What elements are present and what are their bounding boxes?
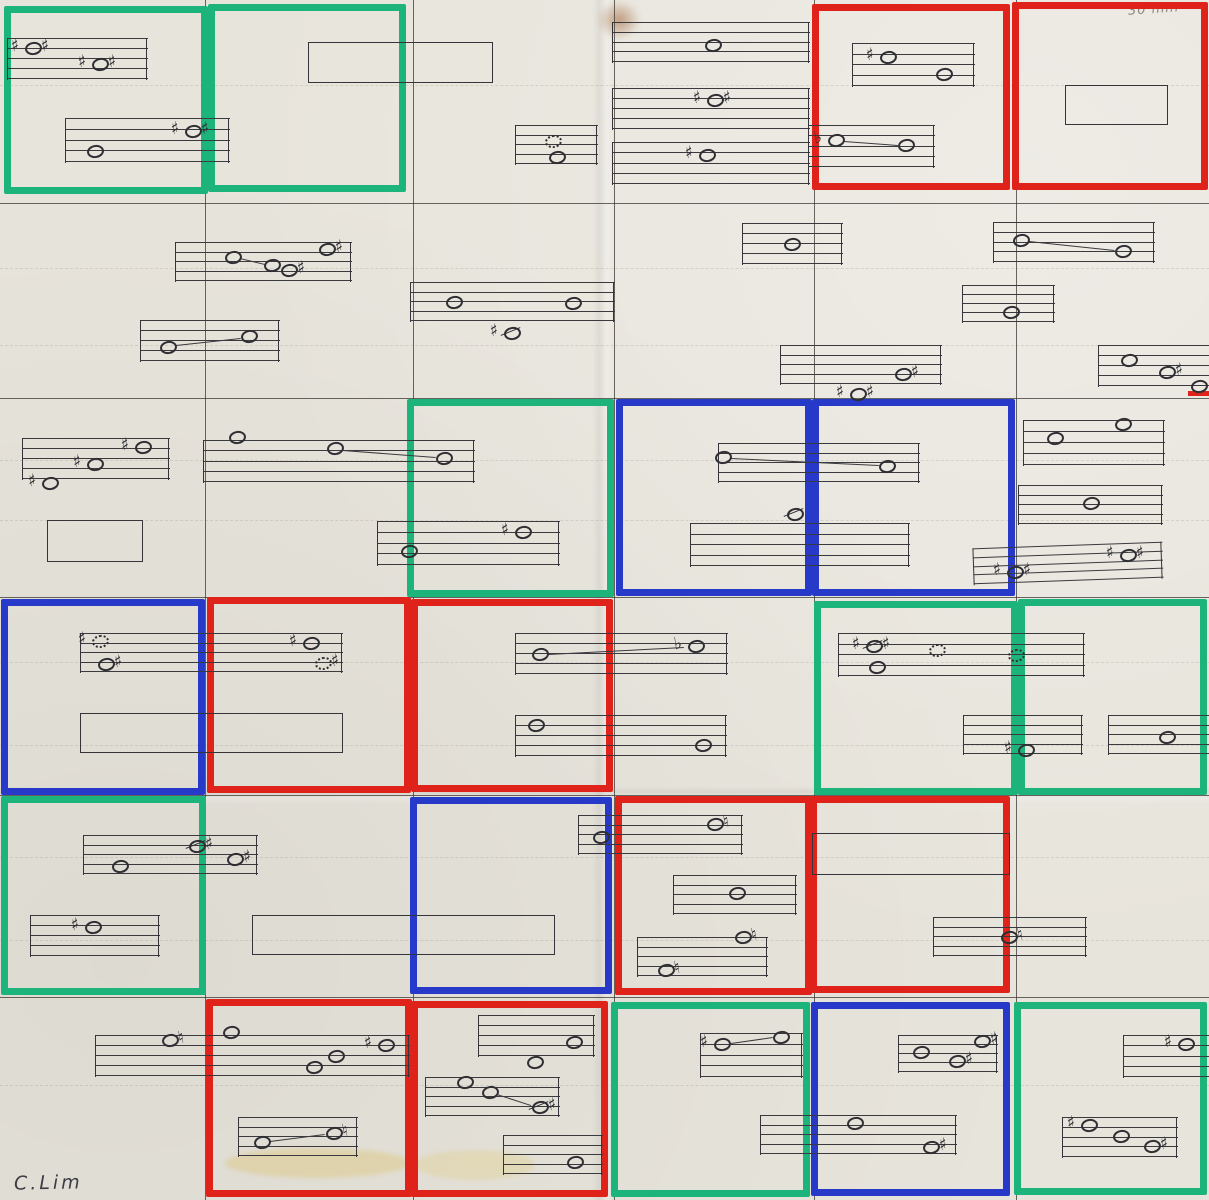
- staff-end-bar: [278, 320, 279, 362]
- rectangle-frame: [308, 42, 493, 83]
- staff-fragment: [808, 125, 935, 168]
- grid-cell-green-r0c1: [208, 4, 406, 192]
- rectangle-frame: [252, 915, 555, 955]
- staff-line: [7, 38, 148, 39]
- staff-line: [203, 471, 475, 472]
- staff-line: [993, 232, 1155, 233]
- staff-end-bar: [515, 715, 516, 757]
- staff-end-bar: [1108, 715, 1109, 755]
- staff-line: [203, 481, 475, 482]
- staff-line: [933, 946, 1087, 947]
- staff-line: [1018, 514, 1163, 515]
- staff-line: [742, 263, 843, 264]
- staff-end-bar: [1053, 285, 1054, 323]
- staff-line: [410, 311, 615, 312]
- staff-line: [478, 1015, 595, 1016]
- staff-line: [515, 633, 728, 634]
- staff-line: [175, 280, 352, 281]
- staff-line: [503, 1145, 603, 1146]
- grid-cell-green-r3c4: [814, 601, 1018, 795]
- staff-end-bar: [515, 125, 516, 165]
- staff-end-bar: [690, 523, 691, 567]
- staff-line: [1098, 375, 1209, 376]
- staff-line: [637, 975, 768, 976]
- staff-line: [1098, 345, 1209, 346]
- staff-line: [612, 142, 810, 143]
- staff-line: [673, 875, 797, 876]
- staff-end-bar: [596, 125, 597, 165]
- staff-line: [95, 1075, 410, 1076]
- staff-line: [690, 523, 910, 524]
- staff-end-bar: [558, 1077, 559, 1117]
- staff-line: [780, 345, 942, 346]
- staff-line: [673, 885, 797, 886]
- staff-line: [612, 61, 810, 62]
- staff-end-bar: [1083, 633, 1084, 677]
- staff-line: [1018, 485, 1163, 486]
- staff-line: [503, 1154, 603, 1155]
- staff-end-bar: [1018, 485, 1019, 525]
- staff-line: [1023, 453, 1165, 454]
- staff-line: [1023, 431, 1165, 432]
- staff-line: [377, 564, 560, 565]
- staff-line: [962, 294, 1055, 295]
- staff-line: [718, 453, 920, 454]
- staff-line: [30, 955, 160, 956]
- staff-end-bar: [1163, 420, 1164, 466]
- staff-line: [410, 282, 615, 283]
- staff-end-bar: [601, 1135, 602, 1175]
- staff-line: [377, 521, 560, 522]
- staff-line: [808, 146, 935, 147]
- staff-end-bar: [1123, 1035, 1124, 1078]
- pencil-grid-hline: [0, 997, 1209, 998]
- rectangle-frame: [812, 833, 1010, 875]
- staff-end-bar: [1153, 222, 1154, 263]
- accidental-left: ♯: [835, 384, 846, 402]
- staff-end-bar: [175, 242, 176, 282]
- staff-fragment: [1023, 420, 1165, 466]
- staff-line: [1098, 365, 1209, 366]
- staff-line: [1123, 1056, 1209, 1057]
- grid-cell-red-r4c4: [810, 796, 1010, 993]
- staff-line: [742, 223, 843, 224]
- staff-line: [1018, 523, 1163, 524]
- staff-end-bar: [838, 633, 839, 677]
- staff-end-bar: [228, 118, 229, 163]
- staff-line: [83, 835, 258, 836]
- staff-end-bar: [256, 835, 257, 875]
- staff-line: [30, 945, 160, 946]
- staff-line: [7, 78, 148, 79]
- rectangle-frame: [1065, 85, 1168, 125]
- staff-line: [515, 663, 728, 664]
- staff-end-bar: [725, 715, 726, 757]
- grid-cell-green-r0c0: [4, 6, 208, 194]
- staff-line: [637, 956, 768, 957]
- staff-end-bar: [742, 223, 743, 265]
- staff-line: [852, 85, 975, 86]
- staff-end-bar: [808, 22, 809, 63]
- staff-end-bar: [1161, 485, 1162, 525]
- staff-line: [95, 1055, 410, 1056]
- staff-end-bar: [766, 937, 767, 977]
- staff-end-bar: [83, 835, 84, 875]
- staff-line: [1108, 753, 1209, 754]
- staff-line: [83, 873, 258, 874]
- staff-line: [410, 320, 615, 321]
- staff-fragment: [515, 715, 727, 757]
- staff-end-bar: [940, 345, 941, 385]
- staff-end-bar: [993, 222, 994, 263]
- note-head-o: [41, 476, 60, 491]
- staff-end-bar: [741, 815, 742, 855]
- staff-fragment: [503, 1135, 603, 1175]
- staff-end-bar: [612, 22, 613, 63]
- staff-end-bar: [1160, 542, 1162, 579]
- staff-line: [410, 301, 615, 302]
- staff-line: [140, 330, 280, 331]
- staff-end-bar: [760, 1115, 761, 1155]
- staff-line: [80, 633, 343, 634]
- rectangle-frame: [80, 713, 343, 753]
- staff-line: [612, 108, 810, 109]
- staff-end-bar: [22, 438, 23, 480]
- staff-line: [808, 125, 935, 126]
- accidental-left: ♯: [489, 323, 500, 341]
- staff-line: [933, 927, 1087, 928]
- staff-line: [1108, 715, 1209, 716]
- staff-line: [612, 183, 810, 184]
- accidental-right: ♯: [865, 384, 876, 402]
- staff-line: [673, 904, 797, 905]
- staff-line: [898, 1071, 998, 1072]
- staff-line: [700, 1065, 803, 1066]
- staff-end-bar: [341, 633, 342, 673]
- staff-line: [503, 1135, 603, 1136]
- staff-line: [612, 118, 810, 119]
- staff-line: [478, 1025, 595, 1026]
- staff-line: [612, 88, 810, 89]
- staff-line: [993, 261, 1155, 262]
- staff-line: [1023, 442, 1165, 443]
- staff-end-bar: [795, 875, 796, 915]
- staff-line: [963, 715, 1083, 716]
- staff-line: [933, 917, 1087, 918]
- staff-line: [690, 544, 910, 545]
- staff-line: [1108, 744, 1209, 745]
- staff-fragment: [637, 937, 768, 977]
- staff-line: [780, 355, 942, 356]
- staff-line: [808, 156, 935, 157]
- staff-line: [425, 1115, 560, 1116]
- staff-line: [65, 161, 230, 162]
- staff-end-bar: [350, 242, 351, 282]
- staff-end-bar: [1085, 917, 1086, 957]
- grid-cell-green-r5c5: [1014, 1002, 1207, 1195]
- staff-line: [83, 845, 258, 846]
- staff-line: [808, 135, 935, 136]
- staff-line: [30, 935, 160, 936]
- grid-cell-red-r3c1: [207, 597, 411, 793]
- signature: C.Lim: [14, 1171, 83, 1194]
- staff-line: [690, 534, 910, 535]
- grid-cell-blue-r3c0: [1, 599, 205, 795]
- staff-line: [203, 461, 475, 462]
- staff-end-bar: [95, 1035, 96, 1077]
- staff-line: [377, 543, 560, 544]
- staff-line: [612, 32, 810, 33]
- grid-cell-blue-r5c4: [811, 1002, 1010, 1196]
- staff-end-bar: [908, 523, 909, 567]
- rectangle-frame: [47, 520, 143, 562]
- staff-line: [377, 532, 560, 533]
- staff-end-bar: [962, 285, 963, 323]
- staff-end-bar: [356, 1117, 357, 1157]
- staff-end-bar: [515, 633, 516, 675]
- staff-line: [503, 1164, 603, 1165]
- grid-cell-green-r2c2: [407, 399, 614, 597]
- staff-line: [1023, 420, 1165, 421]
- staff-line: [1098, 355, 1209, 356]
- staff-end-bar: [1062, 1117, 1063, 1158]
- staff-line: [65, 140, 230, 141]
- staff-line: [95, 1045, 410, 1046]
- staff-line: [690, 555, 910, 556]
- staff-end-bar: [203, 440, 204, 483]
- staff-line: [515, 735, 727, 736]
- staff-line: [700, 1055, 803, 1056]
- staff-end-bar: [1098, 345, 1099, 387]
- staff-line: [718, 481, 920, 482]
- staff-end-bar: [841, 223, 842, 265]
- staff-line: [612, 163, 810, 164]
- staff-line: [515, 125, 598, 126]
- staff-line: [637, 966, 768, 967]
- staff-line: [515, 715, 727, 716]
- staff-line: [963, 725, 1083, 726]
- staff-line: [22, 438, 170, 439]
- staff-fragment: [690, 523, 910, 567]
- staff-end-bar: [963, 715, 964, 755]
- staff-line: [742, 253, 843, 254]
- staff-end-bar: [780, 345, 781, 385]
- grid-cell-green-r3c5: [1018, 599, 1207, 795]
- staff-end-bar: [1023, 420, 1024, 466]
- staff-line: [1108, 725, 1209, 726]
- accidental-right: ♮: [177, 1030, 185, 1048]
- staff-end-bar: [408, 1035, 409, 1077]
- staff-end-bar: [898, 1035, 899, 1073]
- staff-end-bar: [593, 1015, 594, 1057]
- staff-line: [760, 1115, 957, 1116]
- staff-line: [1062, 1117, 1178, 1118]
- staff-end-bar: [1081, 715, 1082, 755]
- staff-line: [175, 271, 352, 272]
- staff-line: [515, 725, 727, 726]
- staff-end-bar: [7, 38, 8, 80]
- staff-line: [673, 913, 797, 914]
- staff-end-bar: [612, 88, 613, 130]
- staff-end-bar: [973, 43, 974, 87]
- grid-cell-green-r4c0: [1, 796, 206, 995]
- staff-line: [993, 222, 1155, 223]
- staff-line: [742, 233, 843, 234]
- staff-end-bar: [1176, 1117, 1177, 1158]
- staff-end-bar: [30, 915, 31, 957]
- staff-line: [933, 955, 1087, 956]
- staff-end-bar: [377, 521, 378, 566]
- staff-line: [612, 173, 810, 174]
- staff-line: [690, 565, 910, 566]
- staff-line: [1123, 1066, 1209, 1067]
- staff-line: [175, 261, 352, 262]
- staff-line: [410, 292, 615, 293]
- staff-line: [700, 1076, 803, 1077]
- staff-line: [140, 320, 280, 321]
- grid-cell-red-r3c2: [411, 599, 613, 792]
- staff-line: [1023, 464, 1165, 465]
- staff-line: [95, 1065, 410, 1066]
- staff-line: [425, 1077, 560, 1078]
- staff-end-bar: [808, 88, 809, 130]
- staff-line: [760, 1134, 957, 1135]
- staff-end-bar: [808, 125, 809, 168]
- staff-line: [1062, 1156, 1178, 1157]
- staff-fragment: [377, 521, 560, 566]
- staff-line: [238, 1155, 358, 1156]
- staff-end-bar: [146, 38, 147, 80]
- staff-line: [962, 285, 1055, 286]
- staff-line: [578, 853, 743, 854]
- staff-end-bar: [612, 142, 613, 185]
- staff-end-bar: [637, 937, 638, 977]
- staff-line: [808, 166, 935, 167]
- score-paper: C.Lim 30 min ♯♯♯♯♯♯♯♯♯♯♭♯♯♯♯♯♯♯♯♯♯♯♯♯♯♯♯…: [0, 0, 1209, 1200]
- staff-end-bar: [425, 1077, 426, 1117]
- staff-end-bar: [410, 282, 411, 322]
- staff-line: [30, 915, 160, 916]
- staff-end-bar: [238, 1117, 239, 1157]
- staff-line: [637, 947, 768, 948]
- staff-end-bar: [726, 633, 727, 675]
- staff-end-bar: [955, 1115, 956, 1155]
- staff-end-bar: [140, 320, 141, 362]
- pencil-grid-hline: [0, 203, 1209, 204]
- staff-end-bar: [503, 1135, 504, 1175]
- staff-line: [838, 633, 1085, 634]
- staff-end-bar: [852, 43, 853, 87]
- staff-end-bar: [478, 1015, 479, 1057]
- staff-line: [1123, 1076, 1209, 1077]
- staff-line: [140, 360, 280, 361]
- staff-end-bar: [168, 438, 169, 480]
- staff-line: [718, 443, 920, 444]
- staff-line: [7, 68, 148, 69]
- staff-line: [1062, 1127, 1178, 1128]
- staff-line: [838, 654, 1085, 655]
- staff-line: [515, 673, 728, 674]
- staff-end-bar: [918, 443, 919, 483]
- staff-line: [238, 1117, 358, 1118]
- staff-end-bar: [158, 915, 159, 957]
- staff-end-bar: [933, 125, 934, 168]
- staff-end-bar: [558, 521, 559, 566]
- staff-line: [963, 734, 1083, 735]
- staff-line: [962, 321, 1055, 322]
- staff-line: [612, 128, 810, 129]
- pencil-grid-hline: [0, 597, 1209, 598]
- staff-end-bar: [65, 118, 66, 163]
- staff-line: [515, 755, 727, 756]
- staff-end-bar: [972, 548, 974, 585]
- staff-end-bar: [613, 282, 614, 322]
- staff-line: [838, 675, 1085, 676]
- staff-fragment: [410, 282, 615, 322]
- staff-end-bar: [801, 1033, 802, 1078]
- staff-line: [503, 1173, 603, 1174]
- staff-line: [612, 22, 810, 23]
- staff-line: [780, 383, 942, 384]
- staff-line: [852, 75, 975, 76]
- staff-fragment: [1098, 345, 1209, 387]
- staff-end-bar: [933, 917, 934, 957]
- staff-line: [973, 559, 1163, 567]
- staff-end-bar: [673, 875, 674, 915]
- staff-line: [962, 303, 1055, 304]
- staff-line: [578, 815, 743, 816]
- staff-end-bar: [578, 815, 579, 855]
- staff-line: [1018, 495, 1163, 496]
- staff-end-bar: [473, 440, 474, 483]
